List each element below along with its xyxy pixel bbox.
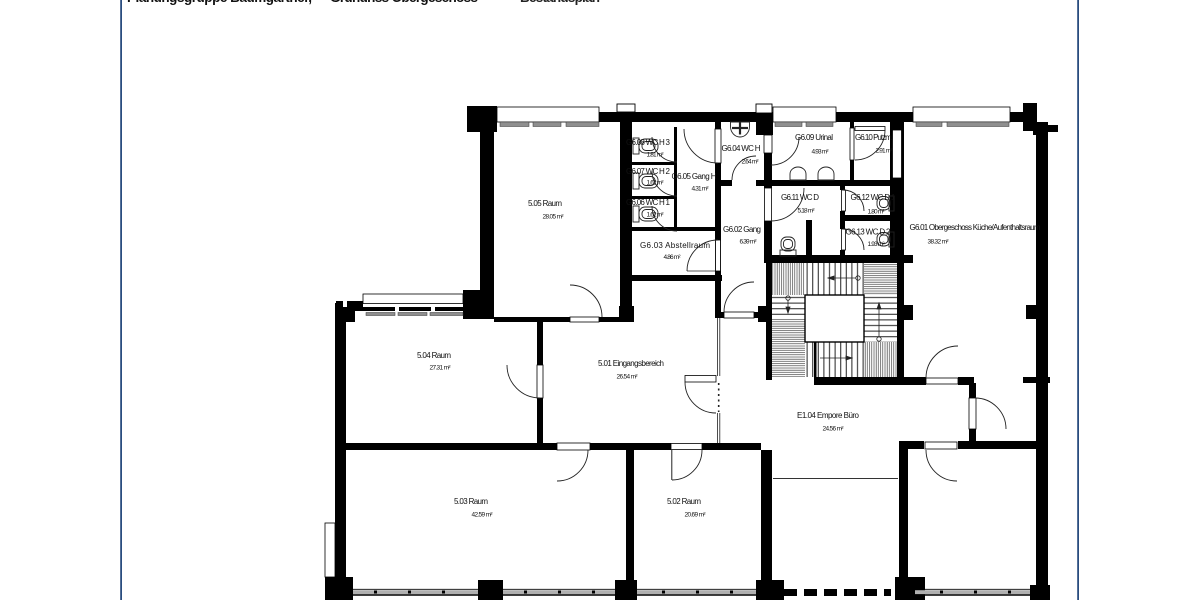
svg-text:5.01 Eingangsbereich: 5.01 Eingangsbereich: [598, 359, 664, 368]
svg-text:1.80 m²: 1.80 m²: [868, 209, 886, 216]
svg-text:27.31 m²: 27.31 m²: [430, 365, 452, 372]
svg-text:G6.06 WC H 1: G6.06 WC H 1: [626, 198, 671, 207]
svg-text:1.62 m²: 1.62 m²: [647, 180, 665, 187]
svg-text:G6.01 Obergeschoss Küche/Aufen: G6.01 Obergeschoss Küche/Aufenthaltsraum: [910, 223, 1041, 232]
svg-text:G6.07 WC H 2: G6.07 WC H 2: [626, 167, 671, 176]
svg-text:1.81 m²: 1.81 m²: [647, 152, 665, 159]
svg-text:G6.03 Abstellraum: G6.03 Abstellraum: [640, 241, 710, 250]
svg-text:G6.13 WC D 2: G6.13 WC D 2: [846, 228, 892, 237]
svg-text:G6.02 Gang: G6.02 Gang: [723, 225, 761, 234]
svg-text:4.86 m²: 4.86 m²: [664, 254, 682, 261]
svg-text:2.91 m²: 2.91 m²: [876, 148, 894, 155]
svg-text:5.18 m²: 5.18 m²: [798, 208, 816, 215]
svg-text:2.64 m²: 2.64 m²: [742, 159, 760, 166]
svg-text:1.93 m²: 1.93 m²: [868, 241, 886, 248]
svg-text:G6.12 WC D 1: G6.12 WC D 1: [851, 193, 897, 202]
svg-text:G6.09 Urinal: G6.09 Urinal: [795, 133, 833, 142]
svg-text:42.59 m²: 42.59 m²: [472, 512, 494, 519]
svg-text:38.32 m²: 38.32 m²: [928, 239, 950, 246]
svg-text:G6.10 Putzm.: G6.10 Putzm.: [855, 133, 893, 142]
svg-text:5.03 Raum: 5.03 Raum: [454, 497, 488, 506]
svg-text:Bestandsplan: Bestandsplan: [520, 0, 600, 5]
svg-text:4.93 m²: 4.93 m²: [812, 149, 830, 156]
svg-text:E1.04 Empore Büro: E1.04 Empore Büro: [797, 411, 860, 420]
svg-text:4.31 m²: 4.31 m²: [692, 186, 710, 193]
svg-text:1.62 m²: 1.62 m²: [647, 212, 665, 219]
svg-text:26.54 m²: 26.54 m²: [617, 374, 639, 381]
svg-text:5.02 Raum: 5.02 Raum: [667, 497, 701, 506]
svg-text:G6.05 Gang H: G6.05 Gang H: [672, 172, 717, 181]
svg-text:Planungsgruppe Baumgartner,: Planungsgruppe Baumgartner,: [127, 0, 312, 5]
svg-text:20.69 m²: 20.69 m²: [685, 512, 707, 519]
svg-text:6.39 m²: 6.39 m²: [740, 239, 758, 246]
svg-text:G6.08 WC H 3: G6.08 WC H 3: [626, 138, 671, 147]
svg-text:G6.11 WC D: G6.11 WC D: [781, 193, 819, 202]
svg-text:28.05 m²: 28.05 m²: [543, 214, 565, 221]
svg-text:5.04 Raum: 5.04 Raum: [417, 351, 451, 360]
svg-text:Grundriss Obergeschoss: Grundriss Obergeschoss: [330, 0, 478, 5]
svg-text:24.56 m²: 24.56 m²: [823, 426, 845, 433]
svg-text:G6.04 WC H: G6.04 WC H: [722, 144, 761, 153]
svg-text:5.05 Raum: 5.05 Raum: [528, 199, 562, 208]
